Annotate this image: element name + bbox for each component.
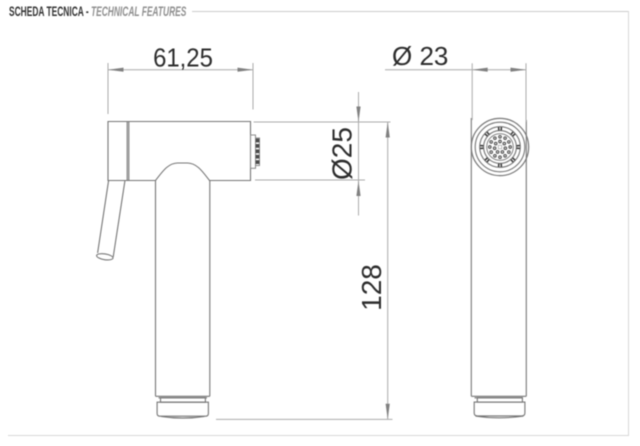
svg-text:Ø25: Ø25: [326, 127, 357, 180]
svg-text:61,25: 61,25: [153, 44, 213, 73]
svg-text:128: 128: [356, 264, 387, 311]
svg-text:Ø 23: Ø 23: [392, 41, 448, 71]
